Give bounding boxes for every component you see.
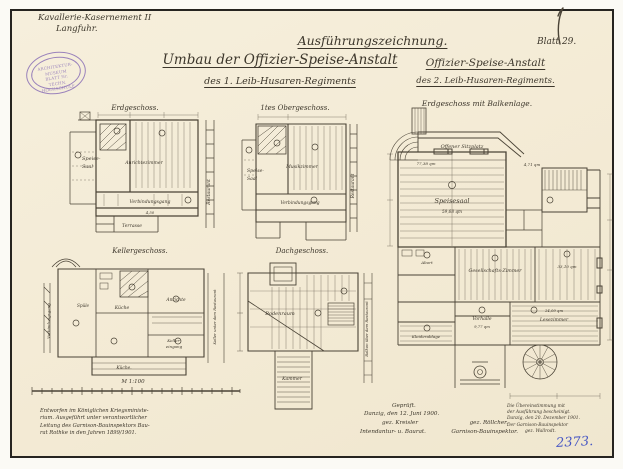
- role-left: Intendantur- u. Baurat.: [360, 428, 426, 436]
- area-sitzplatz: 77,38 qm: [416, 161, 435, 166]
- room-label-speise: Speise-: [247, 168, 264, 174]
- signature-left: gez. Kreisler: [382, 419, 418, 427]
- area-speisesaal: 59,68 qm: [442, 209, 462, 214]
- room-label-anrichte: Anrichte: [165, 298, 186, 303]
- project-name-line2: Langfuhr.: [56, 24, 98, 34]
- approval-block: Geprüft. Danzig, den 12. Juni 1900. gez.…: [360, 402, 518, 436]
- design-note-line4: rat Rothke in den Jahren 1899/1901.: [40, 430, 200, 437]
- main-title-sub: des 1. Leib-Husaren-Regiments: [175, 76, 385, 87]
- plan3-title: Kellergeschoss.: [111, 247, 167, 255]
- signature-right: gez. Röllcher.: [470, 419, 508, 427]
- right-title: Offizier-Speise-Anstalt: [398, 57, 573, 69]
- dim-label: 4,50: [145, 210, 155, 215]
- approval-place-date: Danzig, den 12. Juni 1900.: [360, 410, 518, 418]
- side-label-verbindungsgang: Verbindungsgang: [46, 303, 51, 339]
- design-note: Entworfen im Königlichen Kriegsministe- …: [40, 408, 200, 438]
- room-label-anrichtezimmer: Anrichtezimmer: [124, 160, 163, 166]
- plan2-walls: [242, 124, 357, 240]
- project-name-line1: Kavallerie-Kasernement II: [38, 13, 151, 23]
- scale-label: M 1:100: [120, 379, 145, 385]
- plan5-joists: [387, 154, 613, 399]
- approval-checked: Geprüft.: [360, 402, 518, 410]
- room-label-bottom: Küche.: [115, 366, 131, 371]
- room-label-musikzimmer: Musikzimmer: [285, 164, 319, 170]
- right-subtitle: des 2. Leib-Husaren-Regiments.: [398, 76, 573, 86]
- room-label-sitzplatz: Offener Sitzplatz: [441, 144, 484, 150]
- room-label-kleiderablage: Kleiderablage: [411, 334, 441, 339]
- area-right-room: 33,10 qm: [557, 264, 576, 269]
- room-label-kueche: Küche: [114, 305, 130, 311]
- plan2-title: 1tes Obergeschoss.: [260, 104, 329, 112]
- room-label-abort: Abort: [420, 260, 433, 265]
- room-label-verbindungsgang: Verbindungsgang: [280, 201, 319, 206]
- room-label-spuele: Spüle: [77, 303, 90, 308]
- room-label-kammer: Kammer: [281, 376, 303, 382]
- certification-block: Die Übereinstimmung mit der Ausführung b…: [507, 404, 599, 435]
- design-note-line2: rium. Ausgeführt unter verantwortlicher: [40, 415, 200, 422]
- room-label-terrasse: Terrasse: [122, 223, 142, 229]
- room-label-saal: Saal: [247, 176, 258, 182]
- plan5-title: Erdgeschoss mit Balkenlage.: [421, 99, 532, 108]
- room-label-verbindungsgang: Verbindungsgang: [130, 199, 171, 205]
- area-stair: 4,71 qm: [523, 162, 541, 167]
- room-label-keller-2: eingang: [166, 344, 183, 349]
- room-label-speisesaal-2: Saal: [82, 164, 93, 170]
- plan-erdgeschoss-balkenlage: Erdgeschoss mit Balkenlage.: [382, 90, 618, 414]
- plan-dachgeschoss: Dachgeschoss. Bodenraum Kammer Balkon üb…: [228, 243, 380, 415]
- design-note-line3: Leitung des Garnison-Bauinspektors Bau-: [40, 423, 200, 430]
- sheet-number: Blatt 29.: [537, 37, 576, 47]
- side-label-restaurant: Restaurant: [206, 179, 212, 206]
- design-note-line1: Entworfen im Königlichen Kriegsministe-: [40, 408, 200, 415]
- inventory-number: 2373.: [556, 434, 594, 451]
- drawing-sheet: Kavallerie-Kasernement II Langfuhr. ARCH…: [0, 0, 623, 469]
- plan3-walls: [44, 259, 224, 375]
- plan4-position-markers: [315, 288, 347, 316]
- room-label-speisesaal: Speisesaal: [435, 197, 470, 205]
- room-label-vorhalle: Vorhalle: [472, 316, 491, 322]
- plan-obergeschoss: 1tes Obergeschoss. Speise- Saal Musikzim…: [236, 100, 366, 250]
- side-label-keller: Keller unter dem Restaurant: [212, 289, 217, 346]
- main-title: Umbau der Offizier-Speise-Anstalt: [160, 52, 400, 68]
- plan4-title: Dachgeschoss.: [275, 247, 328, 255]
- plan-kellergeschoss: Kellergeschoss. Spüle Küche Anrichte Kel…: [36, 243, 228, 385]
- area-lesezimmer: 24,09 qm: [544, 308, 564, 313]
- plan-erdgeschoss: Erdgeschoss. Speise- Saal Anrichtezimmer…: [58, 100, 236, 242]
- room-label-gesellschaftszimmer: Gesellschafts-Zimmer: [468, 268, 522, 274]
- area-vorhalle: 9,77 qm: [474, 324, 490, 329]
- scale-bar: M 1:100: [28, 374, 250, 400]
- room-label-speisesaal-1: Speise-: [82, 156, 101, 162]
- plan4-walls: [237, 263, 372, 409]
- side-label-balkon: Balkon über dem Restaurant: [364, 301, 369, 358]
- room-label-lesezimmer: Lesezimmer: [539, 317, 569, 323]
- drawing-type-title: Ausführungszeichnung.: [285, 33, 460, 48]
- plan2-joists: [244, 114, 346, 190]
- room-label-bodenraum: Bodenraum: [264, 311, 295, 317]
- side-label-restaurant: Restaurant: [351, 173, 356, 199]
- room-label-keller-1: Keller-: [166, 338, 181, 343]
- plan1-title: Erdgeschoss.: [110, 104, 158, 112]
- plan5-spiral-stair: [523, 345, 557, 379]
